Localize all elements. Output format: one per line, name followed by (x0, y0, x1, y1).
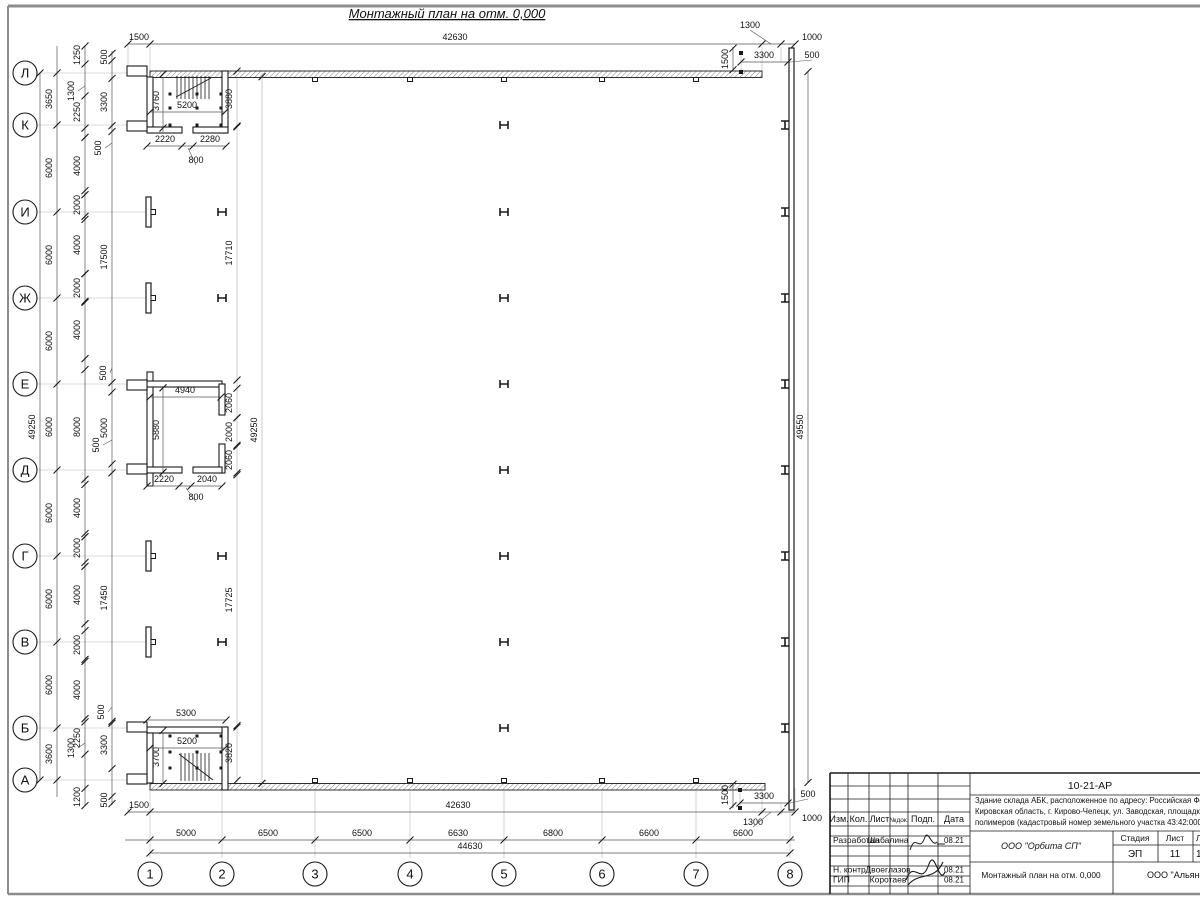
titleblock-col-header: Кол. (850, 814, 868, 824)
h-column (500, 724, 508, 732)
dim-text: 5300 (176, 708, 196, 718)
dim-text: 5200 (177, 736, 197, 746)
titleblock-col-header: Лист (870, 814, 890, 824)
h-column-glyph (781, 294, 789, 302)
titleblock-col-header: №док. (889, 817, 908, 824)
h-column (500, 294, 508, 302)
dim-text: 2060 (224, 450, 234, 470)
anchor-square (738, 806, 742, 810)
dim-leader (750, 30, 771, 44)
dim-text: 2000 (72, 635, 82, 655)
dim-leader (108, 707, 112, 712)
col-axis-label: 3 (311, 867, 318, 882)
dim-text: 3300 (754, 791, 774, 801)
dim-text: 17500 (99, 244, 109, 269)
dim-text: 6000 (44, 417, 54, 437)
dim-text: 3880 (224, 89, 234, 109)
anchor-dot (169, 767, 172, 770)
anchor-dot (220, 124, 223, 127)
dim-text: 17450 (99, 585, 109, 610)
titleblock-name: Двоеглазов (865, 865, 911, 875)
dim-text: 2220 (155, 134, 175, 144)
dim-text: 3300 (754, 50, 774, 60)
dim-leader-text: 500 (93, 140, 103, 155)
sheet: Монтажный план на отм. 0,000492503650600… (0, 0, 1200, 900)
h-column (500, 121, 508, 129)
dim-text: 6600 (639, 828, 659, 838)
anchor-dot (220, 767, 223, 770)
titleblock-role: ГИП (833, 875, 850, 885)
stairs (176, 76, 211, 99)
wall-tab (694, 78, 699, 82)
col-axis-label: 2 (218, 867, 225, 882)
anchor-dot (169, 107, 172, 110)
titleblock-sheet-label: Лист (1166, 833, 1185, 843)
anchor-square (739, 51, 743, 55)
wall-tab (600, 779, 605, 783)
anchor-dot (196, 124, 199, 127)
dim-text: 6000 (44, 158, 54, 178)
col-axis-label: 5 (500, 867, 507, 882)
dim-leader (105, 143, 112, 148)
h-column (781, 380, 789, 388)
h-column (218, 294, 226, 302)
h-column (500, 552, 508, 560)
h-column-glyph (500, 294, 508, 302)
dim-text: 6000 (44, 589, 54, 609)
h-column-glyph (500, 208, 508, 216)
dim-text: 42630 (445, 800, 470, 810)
wall-column-tab (151, 640, 156, 645)
row-axis-label: В (21, 635, 30, 650)
dim-text: 2250 (72, 102, 82, 122)
dim-text: 2040 (197, 474, 217, 484)
dim-text: 4000 (72, 498, 82, 518)
dim-text: 2000 (72, 195, 82, 215)
room-wall (127, 121, 147, 131)
h-column-glyph (500, 466, 508, 474)
wall-tab (313, 78, 318, 82)
anchor-dot (169, 751, 172, 754)
row-axis-label: И (20, 205, 29, 220)
signature (910, 835, 945, 850)
h-column (781, 294, 789, 302)
h-column (781, 552, 789, 560)
dim-text: 1500 (129, 800, 149, 810)
titleblock-col-header: Изм. (829, 814, 848, 824)
titleblock-address-line: Здание склада АБК, расположенное по адре… (975, 796, 1200, 805)
dim-text: 4000 (72, 235, 82, 255)
dim-text: 5000 (176, 828, 196, 838)
titleblock-sheets-value: 1 (1196, 849, 1200, 860)
dim-text: 1250 (72, 45, 82, 65)
h-column-glyph (781, 724, 789, 732)
titleblock-name: Шабалина (867, 835, 908, 845)
anchor-dot (169, 735, 172, 738)
dim-leader-text: 800 (188, 492, 203, 502)
dim-text: 5880 (151, 420, 161, 440)
h-column-glyph (500, 121, 508, 129)
h-column-glyph (781, 380, 789, 388)
dim-leader-text: 500 (98, 365, 108, 380)
anchor-square (738, 788, 742, 792)
dim-text: 5000 (99, 418, 109, 438)
dim-leader-text: 500 (91, 437, 101, 452)
anchor-square (739, 70, 743, 74)
h-column-glyph (500, 638, 508, 646)
h-column-glyph (781, 208, 789, 216)
dim-text: 6600 (733, 828, 753, 838)
dim-leader-text: 500 (800, 789, 815, 799)
dim-text: 6800 (543, 828, 563, 838)
dim-leader-text: 1300 (66, 738, 76, 758)
dim-text: 2000 (72, 538, 82, 558)
h-column (781, 466, 789, 474)
room-wall (193, 127, 228, 133)
dim-text: 1500 (129, 32, 149, 42)
wall-tab (408, 779, 413, 783)
col-axis-label: 8 (786, 867, 793, 882)
row-axis-label: К (21, 118, 29, 133)
dim-text: 17710 (224, 240, 234, 265)
titleblock-date: 08.21 (944, 866, 965, 875)
dim-text: 3300 (99, 92, 109, 112)
col-axis-label: 7 (692, 867, 699, 882)
dim-text: 1200 (72, 787, 82, 807)
titleblock-doc-number: 10-21-АР (1068, 780, 1112, 792)
dim-text: 3760 (151, 91, 161, 111)
anchor-dot (220, 93, 223, 96)
dim-leader-text: 500 (804, 50, 819, 60)
wall-tab (502, 78, 507, 82)
wall-tab (313, 779, 318, 783)
right-wall (789, 48, 794, 810)
dim-text: 42630 (442, 32, 467, 42)
h-column (781, 638, 789, 646)
h-column-glyph (500, 380, 508, 388)
room-wall (127, 380, 147, 390)
dim-leader-text: 1300 (740, 20, 760, 30)
row-axis-label: Л (21, 66, 30, 81)
titleblock-drawing-name: Монтажный план на отм. 0,000 (981, 870, 1101, 880)
signature (906, 860, 945, 885)
h-column (500, 380, 508, 388)
dim-text: 44630 (457, 841, 482, 851)
drawing-canvas: Монтажный план на отм. 0,000492503650600… (0, 0, 1200, 900)
titleblock-col-header: Подп. (911, 814, 935, 824)
dim-text: 6000 (44, 245, 54, 265)
col-axis-label: 1 (146, 867, 153, 882)
h-column-glyph (781, 638, 789, 646)
dim-text: 5200 (177, 100, 197, 110)
dim-text: 3300 (99, 735, 109, 755)
h-column (218, 638, 226, 646)
titleblock-date: 08.21 (944, 836, 965, 845)
room-wall (147, 127, 182, 133)
h-column-glyph (500, 552, 508, 560)
row-axis-label: Ж (19, 291, 31, 306)
dim-leader (78, 86, 85, 91)
drawing-title: Монтажный план на отм. 0,000 (349, 6, 546, 21)
wall-column-tab (151, 210, 156, 215)
h-column-glyph (500, 724, 508, 732)
anchor-dot (196, 93, 199, 96)
wall-column-tab (151, 554, 156, 559)
wall-tab (408, 78, 413, 82)
anchor-dot (196, 751, 199, 754)
room-wall (127, 464, 147, 474)
titleblock-col-header: Дата (944, 814, 964, 824)
row-axis-label: Б (21, 721, 30, 736)
h-column (218, 552, 226, 560)
titleblock-address-line: Кировская область, г. Кирово-Чепецк, ул.… (975, 807, 1200, 816)
row-axis-label: Е (21, 377, 30, 392)
top-wall (150, 71, 762, 78)
dim-leader (103, 440, 112, 445)
dim-text: 6000 (44, 331, 54, 351)
h-column (781, 121, 789, 129)
wall-column (146, 197, 151, 227)
dim-text: 4000 (72, 680, 82, 700)
dim-text: 49550 (795, 414, 805, 439)
dim-text: 3700 (151, 747, 161, 767)
h-column (781, 724, 789, 732)
h-column-glyph (218, 552, 226, 560)
dim-text: 6500 (258, 828, 278, 838)
titleblock-stage-label: Стадия (1121, 833, 1150, 843)
dim-text: 49250 (27, 414, 37, 439)
dim-text: 2060 (224, 393, 234, 413)
dim-text: 1000 (802, 32, 822, 42)
anchor-dot (220, 107, 223, 110)
wall-tab (694, 779, 699, 783)
dim-text: 500 (99, 49, 109, 64)
wall-tab (600, 78, 605, 82)
row-axis-label: Д (21, 463, 30, 478)
wall-column-tab (151, 296, 156, 301)
dim-text: 500 (99, 792, 109, 807)
h-column (500, 466, 508, 474)
titleblock-org-right: ООО "Альянс (1147, 870, 1200, 880)
dim-text: 4000 (72, 320, 82, 340)
col-axis-label: 6 (598, 867, 605, 882)
col-axis-label: 4 (406, 867, 413, 882)
wall-column (146, 541, 151, 571)
dim-leader-text: 1300 (66, 81, 76, 101)
titleblock-role: Н. контр. (833, 865, 868, 875)
anchor-dot (220, 735, 223, 738)
h-column (781, 208, 789, 216)
titleblock-sheets-label: Листов (1196, 833, 1200, 843)
dim-text: 4000 (72, 156, 82, 176)
dim-leader-text: 1300 (743, 817, 763, 827)
h-column (500, 208, 508, 216)
dim-leader-text: 800 (188, 155, 203, 165)
anchor-dot (169, 93, 172, 96)
dim-text: 6500 (352, 828, 372, 838)
dim-text: 1500 (720, 785, 730, 805)
h-column-glyph (781, 552, 789, 560)
h-column-glyph (218, 638, 226, 646)
bottom-wall (150, 784, 765, 791)
dim-text: 2280 (200, 134, 220, 144)
dim-text: 6000 (44, 503, 54, 523)
h-column (218, 208, 226, 216)
dim-text: 2000 (72, 278, 82, 298)
h-column-glyph (781, 466, 789, 474)
anchor-dot (169, 124, 172, 127)
dim-text: 17725 (224, 587, 234, 612)
dim-text: 6000 (44, 675, 54, 695)
wall-column (146, 283, 151, 313)
titleblock-name: Коротаев (870, 875, 907, 885)
anchor-dot (196, 767, 199, 770)
dim-text: 1500 (720, 49, 730, 69)
titleblock-date: 08.21 (944, 876, 965, 885)
row-axis-label: А (21, 773, 30, 788)
dim-text: 8000 (72, 417, 82, 437)
row-axis-label: Г (21, 549, 28, 564)
titleblock-address-line: полимеров (кадастровый номер земельного … (975, 818, 1200, 827)
dim-text: 1000 (802, 813, 822, 823)
titleblock-sheet-value: 11 (1170, 849, 1181, 860)
wall-column (146, 627, 151, 657)
dim-text: 49250 (249, 417, 259, 442)
h-column (500, 638, 508, 646)
dim-leader-text: 500 (96, 704, 106, 719)
room-wall (127, 66, 147, 76)
h-column-glyph (218, 294, 226, 302)
dim-text: 2000 (224, 422, 234, 442)
h-column-glyph (218, 208, 226, 216)
wall-tab (502, 779, 507, 783)
titleblock-stage-value: ЭП (1128, 849, 1142, 860)
h-column-glyph (781, 121, 789, 129)
dim-text: 4000 (72, 585, 82, 605)
dim-text: 4940 (175, 385, 195, 395)
dim-text: 3820 (224, 743, 234, 763)
dim-text: 3650 (44, 89, 54, 109)
dim-text: 3600 (44, 744, 54, 764)
titleblock-org-design: ООО "Орбита СП" (1001, 841, 1082, 851)
dim-text: 6630 (448, 828, 468, 838)
room-wall (147, 727, 228, 733)
room-wall (127, 774, 147, 784)
dim-text: 2220 (154, 474, 174, 484)
room-wall (193, 467, 222, 473)
